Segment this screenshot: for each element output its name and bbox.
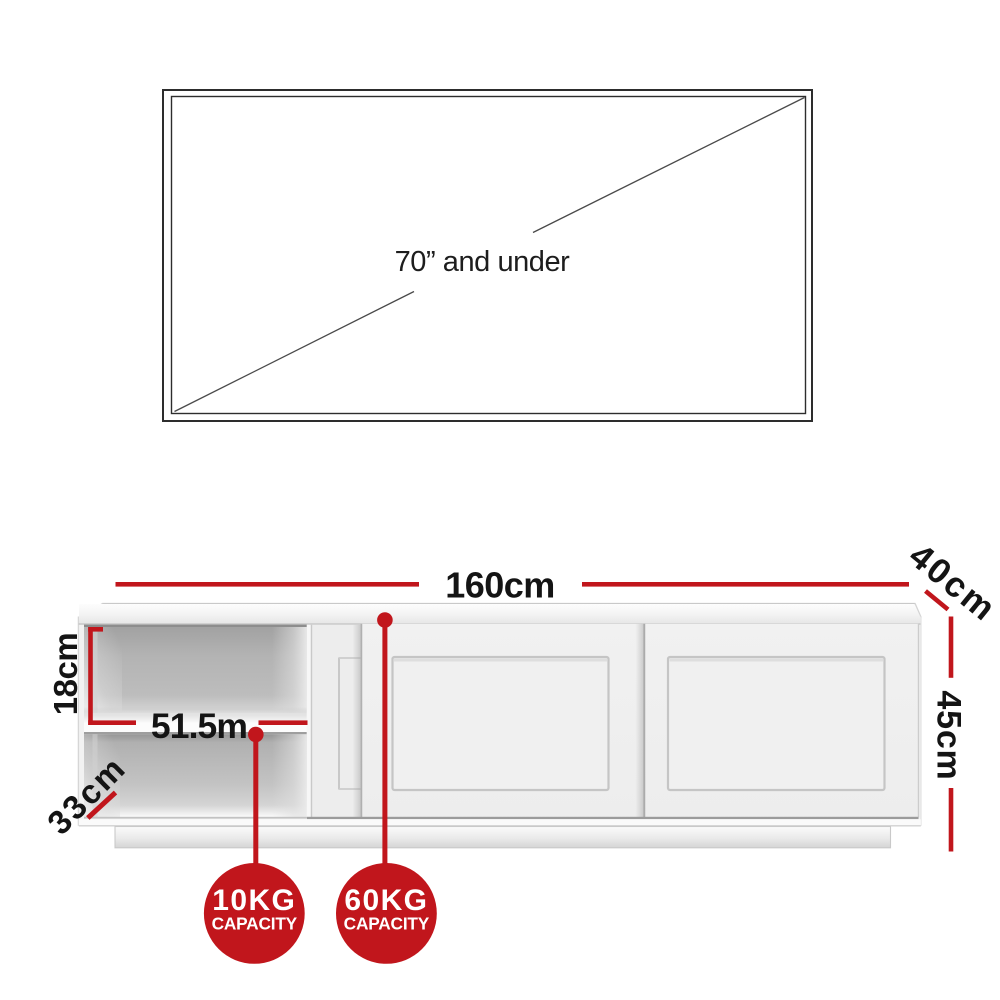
svg-text:60KG: 60KG bbox=[344, 884, 428, 917]
svg-text:160cm: 160cm bbox=[445, 565, 555, 606]
svg-text:70” and under: 70” and under bbox=[395, 246, 571, 278]
svg-text:18cm: 18cm bbox=[47, 633, 84, 715]
svg-text:10KG: 10KG bbox=[212, 884, 296, 917]
svg-text:51.5m: 51.5m bbox=[151, 706, 247, 746]
svg-text:CAPACITY: CAPACITY bbox=[344, 914, 430, 934]
svg-text:CAPACITY: CAPACITY bbox=[212, 914, 298, 934]
svg-text:45cm: 45cm bbox=[930, 690, 968, 780]
